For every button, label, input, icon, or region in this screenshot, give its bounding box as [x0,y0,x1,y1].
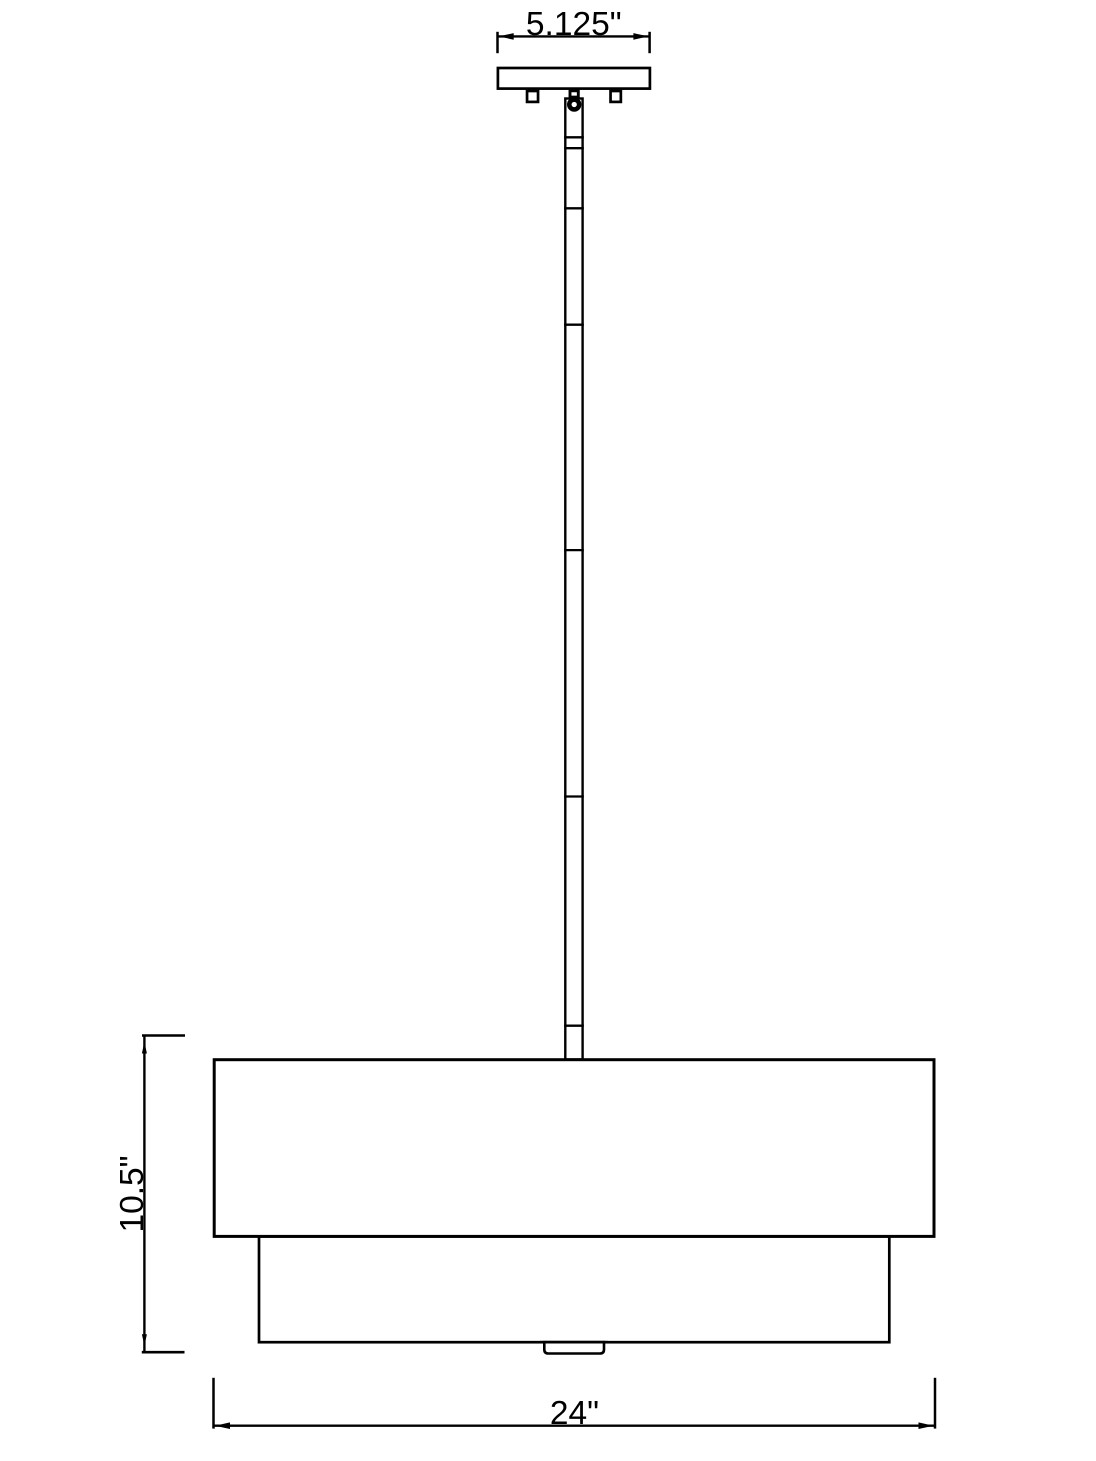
svg-text:24": 24" [550,1395,599,1432]
svg-text:5.125": 5.125" [526,6,622,43]
svg-text:10.5": 10.5" [114,1155,151,1232]
